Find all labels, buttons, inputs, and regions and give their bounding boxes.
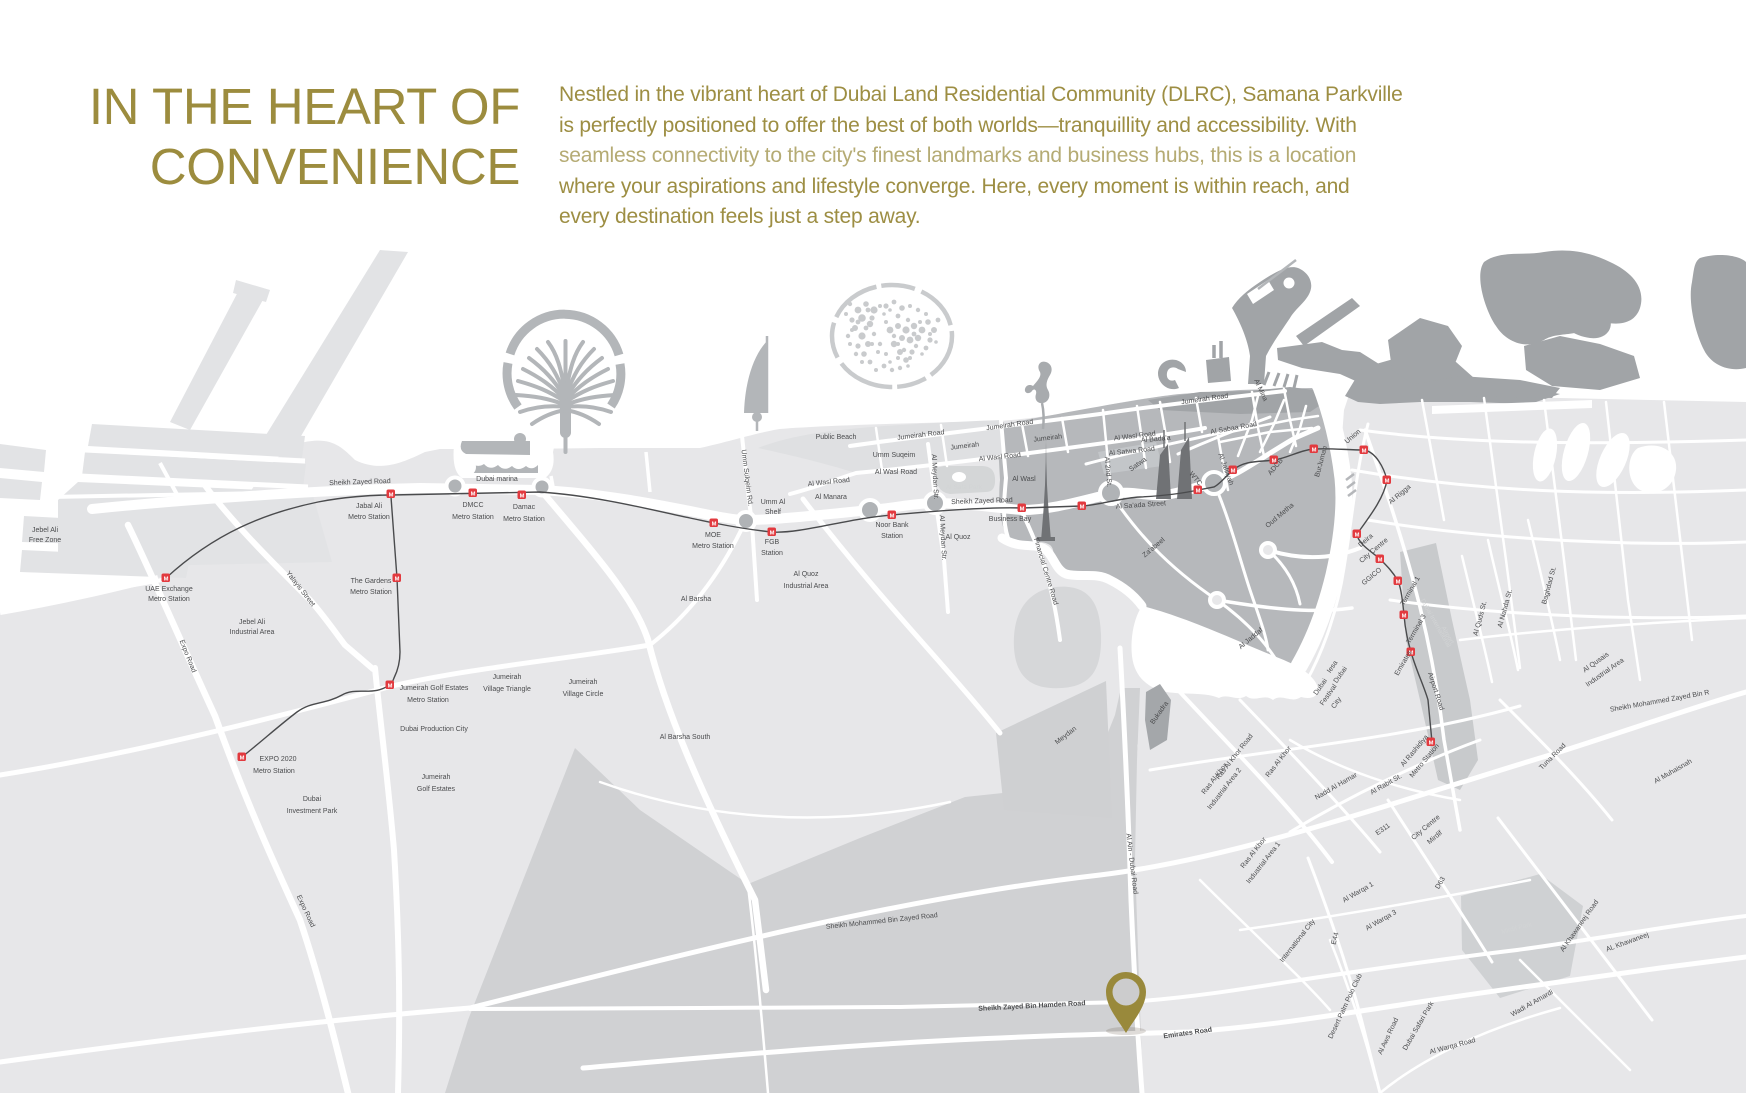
svg-text:Damac: Damac <box>513 504 536 511</box>
svg-text:Metro Station: Metro Station <box>348 514 390 521</box>
svg-text:Jebel Ali: Jebel Ali <box>239 619 266 626</box>
svg-text:Golf Estates: Golf Estates <box>417 786 456 793</box>
svg-text:M: M <box>471 492 476 498</box>
svg-text:Al Barsha: Al Barsha <box>681 596 711 603</box>
svg-text:M: M <box>389 493 394 499</box>
svg-text:FGB: FGB <box>765 539 780 546</box>
svg-text:Al Quoz: Al Quoz <box>946 534 971 541</box>
svg-text:M: M <box>1362 449 1367 455</box>
svg-text:Jumeirah: Jumeirah <box>569 679 598 686</box>
svg-text:M: M <box>1312 448 1317 454</box>
svg-text:MOE: MOE <box>705 532 721 539</box>
svg-text:Metro Station: Metro Station <box>350 589 392 596</box>
svg-text:Jumeirah: Jumeirah <box>422 774 451 781</box>
svg-text:Jabal Ali: Jabal Ali <box>356 503 383 510</box>
svg-text:M: M <box>164 577 169 583</box>
svg-text:M: M <box>712 522 717 528</box>
svg-text:Al Quoz: Al Quoz <box>794 571 819 578</box>
svg-text:Jumeirah Golf Estates: Jumeirah Golf Estates <box>400 685 469 692</box>
svg-text:Al Barsha South: Al Barsha South <box>660 734 711 741</box>
svg-text:M: M <box>1396 580 1401 586</box>
svg-text:Metro Station: Metro Station <box>692 543 734 550</box>
svg-text:Dubai: Dubai <box>303 796 322 803</box>
svg-text:Jebel Ali: Jebel Ali <box>32 527 59 534</box>
svg-text:M: M <box>1080 505 1085 511</box>
svg-text:Al Manara: Al Manara <box>815 494 847 501</box>
svg-text:M: M <box>388 684 393 690</box>
svg-text:Public Beach: Public Beach <box>816 434 857 441</box>
svg-text:M: M <box>1355 533 1360 539</box>
svg-text:M: M <box>1402 614 1407 620</box>
svg-text:Al Safa Park: Al Safa Park <box>946 484 983 491</box>
svg-text:Metro Station: Metro Station <box>407 697 449 704</box>
svg-text:Industrial Area: Industrial Area <box>784 583 829 590</box>
svg-text:Free Zone: Free Zone <box>29 537 61 544</box>
svg-text:Umm Al: Umm Al <box>761 499 786 506</box>
svg-text:EXPO 2020: EXPO 2020 <box>260 756 297 763</box>
svg-text:Village Triangle: Village Triangle <box>483 686 531 693</box>
svg-text:UAE Exchange: UAE Exchange <box>145 586 193 593</box>
svg-text:Village Circle: Village Circle <box>563 691 604 698</box>
svg-text:M: M <box>1378 558 1383 564</box>
svg-text:Business Bay: Business Bay <box>989 516 1032 523</box>
svg-text:M: M <box>770 531 775 537</box>
svg-text:Metro Station: Metro Station <box>253 768 295 775</box>
svg-text:Shelf: Shelf <box>765 509 781 516</box>
svg-text:Al Wasl: Al Wasl <box>1012 476 1036 483</box>
svg-text:Metro Station: Metro Station <box>503 516 545 523</box>
svg-text:Industrial Area: Industrial Area <box>230 629 275 636</box>
svg-text:Investment Park: Investment Park <box>287 808 338 815</box>
svg-text:Al Wasl Road: Al Wasl Road <box>875 469 917 476</box>
svg-text:M: M <box>520 494 525 500</box>
svg-text:DMCC: DMCC <box>463 502 484 509</box>
svg-text:M: M <box>890 514 895 520</box>
svg-text:Dubai Production City: Dubai Production City <box>400 726 468 733</box>
svg-text:M: M <box>1020 507 1025 513</box>
svg-text:Metro Station: Metro Station <box>452 514 494 521</box>
svg-text:Jumeirah: Jumeirah <box>493 674 522 681</box>
svg-text:M: M <box>395 577 400 583</box>
svg-text:The Gardens: The Gardens <box>351 578 392 585</box>
svg-text:M: M <box>240 756 245 762</box>
svg-text:Noor Bank: Noor Bank <box>875 522 909 529</box>
svg-text:M: M <box>1385 479 1390 485</box>
svg-text:Umm Suqeim: Umm Suqeim <box>873 452 916 459</box>
svg-text:Metro Station: Metro Station <box>148 596 190 603</box>
svg-text:Dubai marina: Dubai marina <box>476 476 518 483</box>
svg-text:Station: Station <box>761 550 783 557</box>
svg-text:M: M <box>1196 489 1201 495</box>
svg-text:Station: Station <box>881 533 903 540</box>
